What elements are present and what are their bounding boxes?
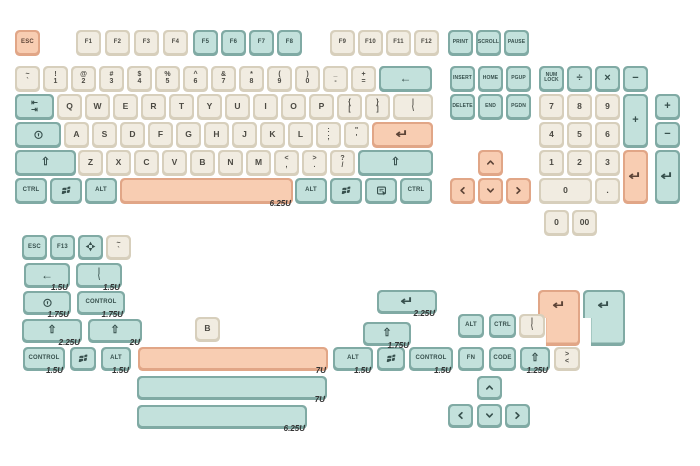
key-win-a bbox=[70, 347, 96, 371]
key-fn: FN bbox=[458, 347, 484, 371]
key-control-15u-a: CONTROL1.5U bbox=[23, 347, 65, 371]
key-alt-15u-b: ALT1.5U bbox=[333, 347, 373, 371]
keycap-face: ESC bbox=[24, 237, 45, 257]
keycap-face: ⇧ bbox=[522, 349, 548, 368]
key-alt-15u-a: ALT1.5U bbox=[101, 347, 131, 371]
backspace-icon: ← bbox=[41, 269, 53, 281]
size-label: 1.75U bbox=[388, 341, 409, 350]
key-legend: ALT bbox=[110, 355, 122, 361]
key-legend: CONTROL bbox=[85, 299, 116, 305]
enter-icon: ↵ bbox=[552, 299, 565, 311]
key-backslash-15u: |\1.5U bbox=[76, 263, 122, 288]
key-alt-small: ALT bbox=[458, 314, 484, 338]
keycap-face: ALT bbox=[335, 349, 371, 368]
key-legend: ALT bbox=[465, 322, 477, 328]
keycap-face bbox=[479, 378, 500, 397]
key-arrow-up-2 bbox=[477, 376, 502, 400]
keycap-face: FN bbox=[460, 349, 482, 368]
key-caps-175u: 1.75U bbox=[23, 291, 71, 315]
key-legend: ESC bbox=[28, 244, 41, 250]
key-arrow-left-2 bbox=[448, 404, 473, 428]
shift-icon: ⇧ bbox=[382, 328, 391, 339]
key-shift-225u: ⇧2.25U bbox=[22, 319, 82, 343]
enter-icon: ↵ bbox=[400, 295, 413, 307]
key-grave-2: ~` bbox=[106, 235, 131, 260]
keycap-face: CONTROL bbox=[25, 349, 63, 368]
key-shift-175u: ⇧1.75U bbox=[363, 322, 411, 346]
enter-icon: ↵ bbox=[597, 299, 610, 311]
key-enter-225u: ↵2.25U bbox=[377, 290, 437, 314]
keycap-face: ↵ bbox=[540, 292, 578, 343]
key-shift-125u: ⇧1.25U bbox=[520, 347, 550, 371]
key-b-key: B bbox=[195, 317, 220, 342]
key-legend: ALT bbox=[347, 355, 359, 361]
size-label: 7U bbox=[316, 366, 326, 375]
key-esc-2: ESC bbox=[22, 235, 47, 260]
key-shift-2u: ⇧2U bbox=[88, 319, 142, 343]
keycap-face bbox=[25, 293, 69, 312]
keycap-face bbox=[72, 349, 94, 368]
keycap-face: F13 bbox=[52, 237, 73, 257]
key-legend-pair: |\ bbox=[98, 268, 100, 282]
key-space-7u-peach: 7U bbox=[138, 347, 328, 371]
key-iso-enter-teal: ↵ bbox=[583, 290, 625, 346]
key-compass bbox=[78, 235, 103, 260]
keycap-face: ALT bbox=[460, 316, 482, 335]
size-label: 1.5U bbox=[354, 366, 371, 375]
keycap-face bbox=[379, 349, 403, 368]
keycap-face: ↵ bbox=[379, 292, 435, 311]
keycap-face bbox=[139, 378, 325, 397]
key-legend: CONTROL bbox=[28, 355, 59, 361]
key-arrow-right-2 bbox=[505, 404, 530, 428]
key-legend-pair: >< bbox=[565, 351, 569, 365]
keycap-face: ~` bbox=[108, 237, 129, 257]
lock-icon bbox=[42, 297, 53, 308]
key-backslash-cream: |\ bbox=[519, 314, 545, 338]
key-win-b bbox=[377, 347, 405, 371]
key-code: CODE bbox=[489, 347, 516, 371]
key-legend-pair: |\ bbox=[531, 318, 533, 332]
size-label: 6.25U bbox=[270, 199, 291, 208]
size-label: 1.5U bbox=[434, 366, 451, 375]
key-legend: F13 bbox=[57, 244, 68, 250]
key-backspace-15u: ←1.5U bbox=[24, 263, 70, 288]
key-control-15u-b: CONTROL1.5U bbox=[409, 347, 453, 371]
keycap-face: ← bbox=[26, 265, 68, 285]
keycap-face: CODE bbox=[491, 349, 514, 368]
size-label: 1.5U bbox=[51, 283, 68, 292]
keycap-face: CONTROL bbox=[411, 349, 451, 368]
keycap-face: |\ bbox=[78, 265, 120, 285]
chevron-down-icon bbox=[484, 410, 495, 421]
extra-keys-layout: ESCF13~`←1.5U|\1.5U1.75UCONTROL1.75U↵2.2… bbox=[0, 0, 700, 466]
key-legend: FN bbox=[467, 355, 475, 361]
key-space-7u-teal: 7U bbox=[137, 376, 327, 400]
size-label: 6.25U bbox=[284, 424, 305, 433]
compass-icon bbox=[85, 241, 96, 252]
size-label: 2.25U bbox=[414, 309, 435, 318]
keycap-face: B bbox=[197, 319, 218, 339]
keycap-set-image: ESCF1F2F3F4F5F6F7F8F9F10F11F12PRINTSCROL… bbox=[0, 0, 700, 466]
key-legend: B bbox=[204, 324, 210, 333]
size-label: 2.25U bbox=[59, 338, 80, 347]
keycap-face bbox=[80, 237, 101, 257]
keycap-face: ⇧ bbox=[24, 321, 80, 340]
keycap-face bbox=[139, 407, 305, 426]
win-icon bbox=[386, 353, 397, 364]
key-legend: CONTROL bbox=[415, 355, 446, 361]
key-control-175u: CONTROL1.75U bbox=[77, 291, 125, 315]
size-label: 1.5U bbox=[112, 366, 129, 375]
size-label: 1.5U bbox=[103, 283, 120, 292]
keycap-face bbox=[507, 406, 528, 425]
key-ctrl-small: CTRL bbox=[489, 314, 516, 338]
key-f13: F13 bbox=[50, 235, 75, 260]
keycap-face: >< bbox=[556, 349, 578, 368]
size-label: 1.75U bbox=[102, 310, 123, 319]
key-arrow-down-2 bbox=[477, 404, 502, 428]
size-label: 1.5U bbox=[46, 366, 63, 375]
keycap-face bbox=[479, 406, 500, 425]
shift-icon: ⇧ bbox=[530, 353, 539, 364]
keycap-face: CTRL bbox=[491, 316, 514, 335]
keycap-face: ⇧ bbox=[90, 321, 140, 340]
chevron-left-icon bbox=[455, 410, 466, 421]
key-legend: CTRL bbox=[494, 322, 511, 328]
keycap-face: |\ bbox=[521, 316, 543, 335]
shift-icon: ⇧ bbox=[110, 325, 119, 336]
keycap-face: CONTROL bbox=[79, 293, 123, 312]
keycap-face: ↵ bbox=[585, 292, 623, 343]
keycap-face: ALT bbox=[103, 349, 129, 368]
chevron-up-icon bbox=[484, 382, 495, 393]
keycap-face bbox=[140, 349, 326, 368]
key-legend-pair: ~` bbox=[116, 240, 120, 254]
win-icon bbox=[78, 353, 89, 364]
chevron-right-icon bbox=[512, 410, 523, 421]
keycap-face bbox=[450, 406, 471, 425]
key-space-625u-teal: 6.25U bbox=[137, 405, 307, 429]
key-legend: CODE bbox=[493, 355, 511, 361]
size-label: 2U bbox=[130, 338, 140, 347]
size-label: 7U bbox=[315, 395, 325, 404]
shift-icon: ⇧ bbox=[47, 325, 56, 336]
key-iso-angle: >< bbox=[554, 347, 580, 371]
size-label: 1.25U bbox=[527, 366, 548, 375]
keycap-face: ⇧ bbox=[365, 324, 409, 343]
size-label: 1.75U bbox=[48, 310, 69, 319]
